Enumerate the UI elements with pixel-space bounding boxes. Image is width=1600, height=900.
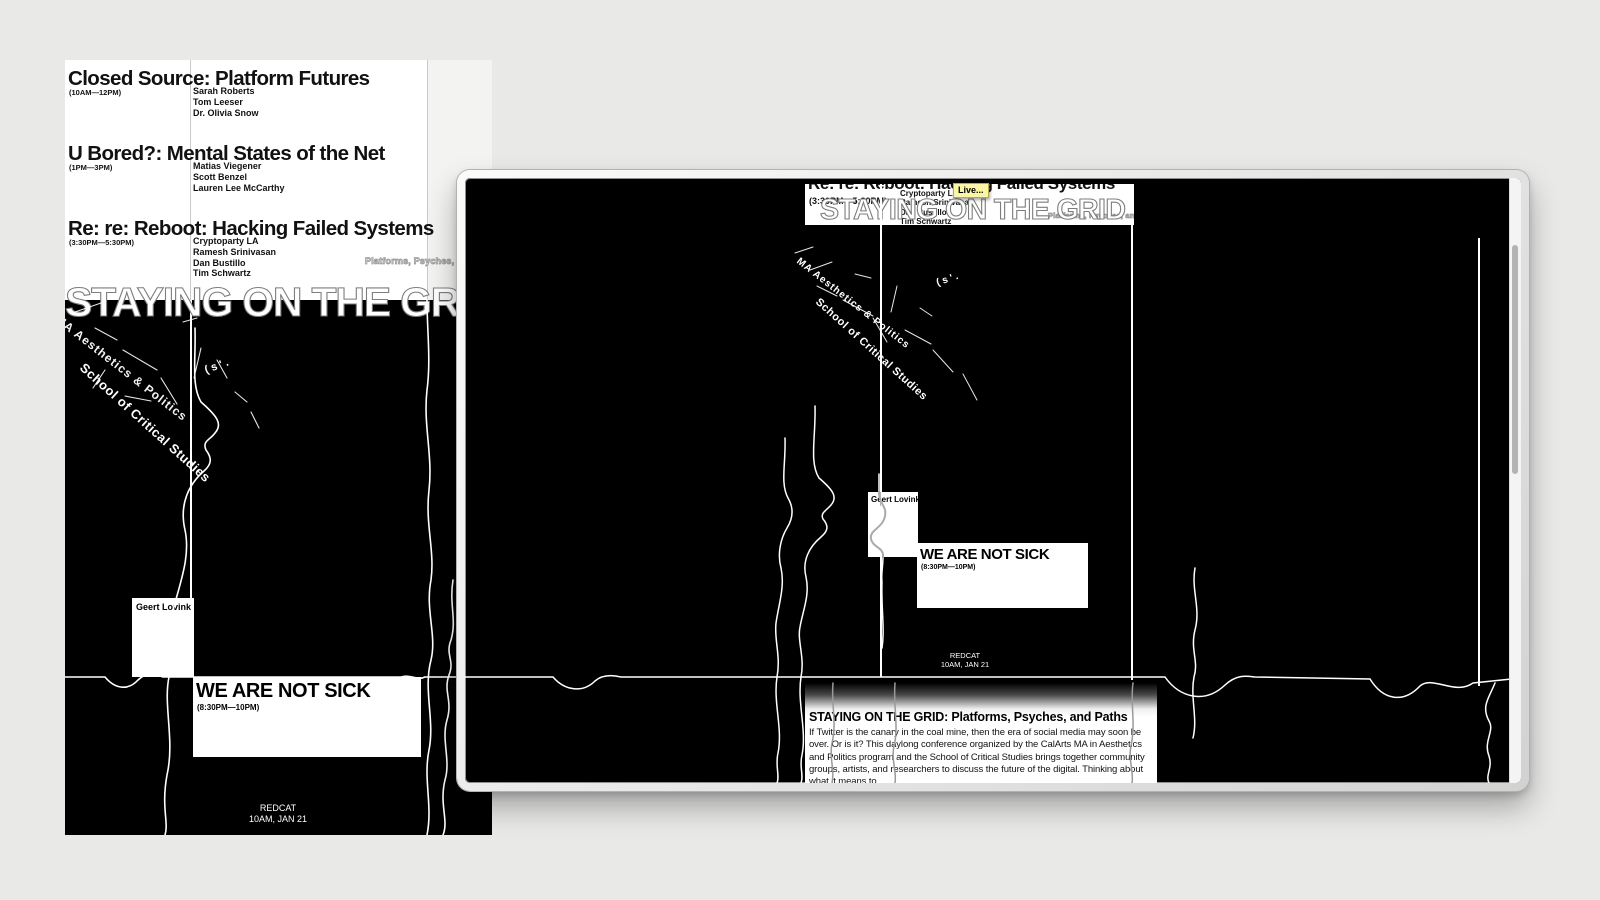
description-body: If Twitter is the canary in the coal min…: [809, 727, 1155, 783]
speaker: Tom Leeser: [193, 97, 259, 108]
evening-show-time: (8:30PM—10PM): [197, 703, 259, 712]
description-heading: STAYING ON THE GRID: Platforms, Psyches,…: [809, 710, 1128, 724]
session-time: (10AM—12PM): [69, 88, 121, 97]
session-speakers: Cryptoparty LA Ramesh Srinivasan Dan Bus…: [193, 236, 276, 279]
screen-frame: Re: re: Reboot: Hacking Failed Systems (…: [457, 170, 1529, 791]
scrollbar-track[interactable]: [1509, 178, 1521, 783]
evening-speaker-box: Geert Lovink: [868, 492, 918, 557]
speaker: Dan Bustillo: [193, 258, 276, 269]
tooltip: Live...: [953, 183, 989, 198]
venue-name: REDCAT: [885, 651, 1045, 660]
grid-line: [1478, 238, 1480, 686]
description-section: STAYING ON THE GRID: Platforms, Psyches,…: [805, 683, 1157, 783]
scribble-mark: ( s ' .: [203, 357, 230, 377]
venue-block: REDCAT 10AM, JAN 21: [885, 651, 1045, 670]
speaker: Lauren Lee McCarthy: [193, 183, 285, 194]
scrollbar-thumb[interactable]: [1512, 245, 1518, 474]
poster-big-title: STAYING ON THE GRID: [65, 279, 492, 326]
speaker: Tim Schwartz: [193, 268, 276, 279]
evening-speaker-name: Geert Lovink: [871, 495, 920, 504]
evening-show-time: (8:30PM—10PM): [921, 564, 975, 571]
session-time: (1PM—3PM): [69, 163, 112, 172]
session-speakers: Matias Viegener Scott Benzel Lauren Lee …: [193, 161, 285, 193]
poster-big-title: STAYING ON THE GRID: [820, 194, 1125, 227]
grid-line: [1131, 225, 1133, 680]
desktop-canvas: Closed Source: Platform Futures (10AM—12…: [0, 0, 1600, 900]
speaker: Dr. Olivia Snow: [193, 108, 259, 119]
speaker: Ramesh Srinivasan: [193, 247, 276, 258]
evening-show-title: WE ARE NOT SICK: [920, 546, 1049, 563]
venue-date: 10AM, JAN 21: [885, 660, 1045, 669]
evening-speaker-box: Geert Lovink: [132, 598, 194, 677]
speaker: Cryptoparty LA: [193, 236, 276, 247]
evening-show-box: WE ARE NOT SICK (8:30PM—10PM): [917, 543, 1088, 608]
venue-name: REDCAT: [198, 803, 358, 814]
evening-show-title: WE ARE NOT SICK: [196, 680, 370, 703]
session-speakers: Sarah Roberts Tom Leeser Dr. Olivia Snow: [193, 86, 259, 118]
grid-line: [190, 60, 191, 300]
poster-left: Closed Source: Platform Futures (10AM—12…: [65, 60, 492, 835]
scribble-mark: ( s ' .: [935, 271, 960, 288]
evening-speaker-name: Geert Lovink: [136, 602, 191, 612]
evening-show-box: WE ARE NOT SICK (8:30PM—10PM): [193, 677, 421, 757]
browser-viewport[interactable]: Re: re: Reboot: Hacking Failed Systems (…: [465, 178, 1521, 783]
speaker: Sarah Roberts: [193, 86, 259, 97]
speaker: Matias Viegener: [193, 161, 285, 172]
session-time: (3:30PM—5:30PM): [69, 238, 134, 247]
grid-line: [880, 492, 881, 506]
venue-block: REDCAT 10AM, JAN 21: [198, 803, 358, 826]
speaker: Scott Benzel: [193, 172, 285, 183]
grid-line: [880, 184, 882, 677]
venue-date: 10AM, JAN 21: [198, 814, 358, 825]
